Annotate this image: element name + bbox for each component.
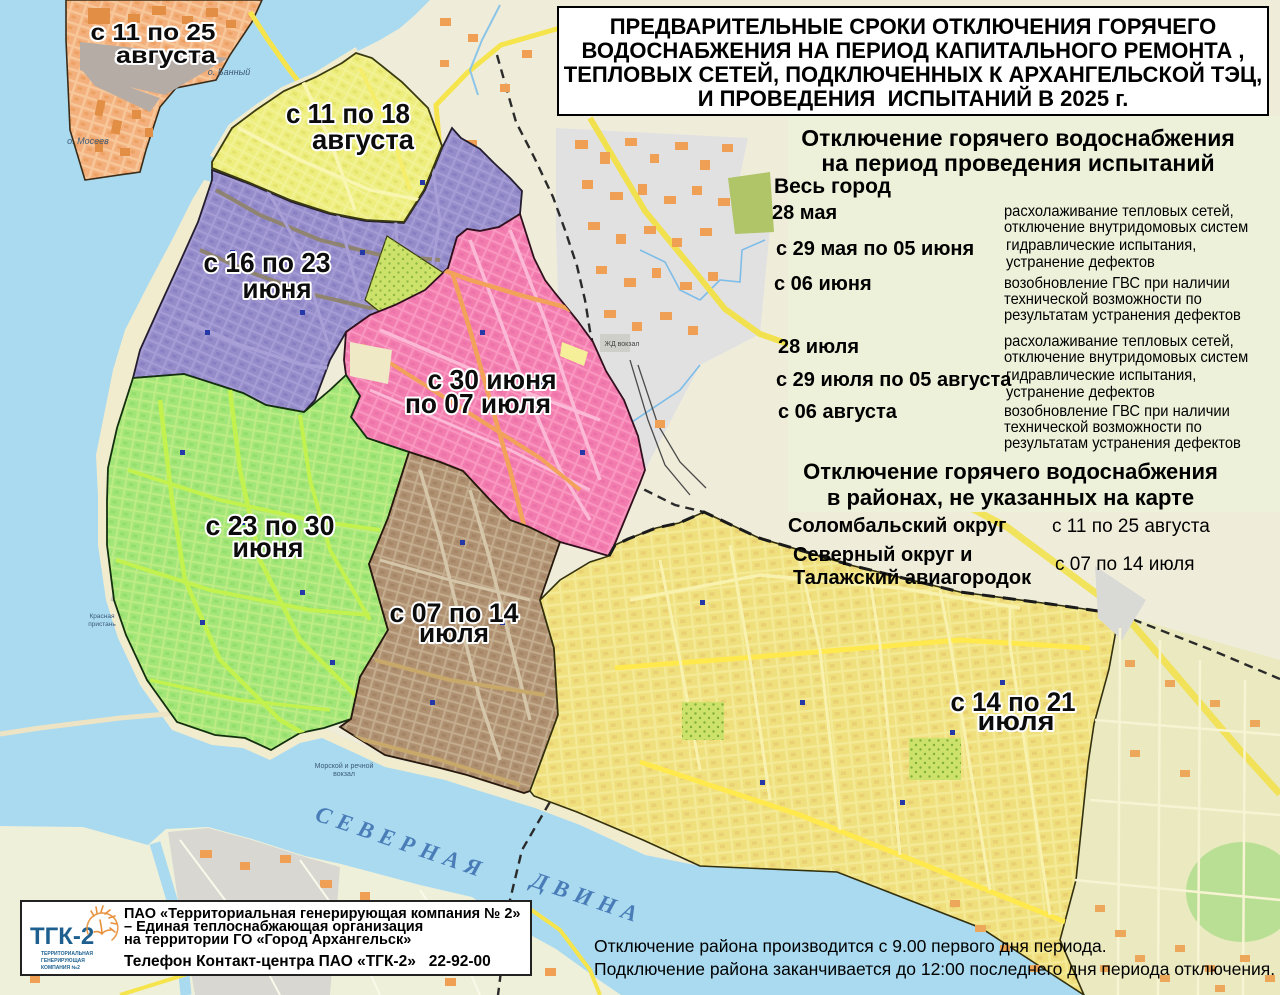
svg-text:ТГК-2: ТГК-2 <box>30 923 94 950</box>
svg-text:ЖД вокзал: ЖД вокзал <box>604 341 639 348</box>
svg-text:Красная: Красная <box>90 613 115 620</box>
svg-text:по 07 июля: по 07 июля <box>405 388 551 419</box>
svg-text:июня: июня <box>233 532 304 563</box>
svg-text:о. Банный: о. Банный <box>208 67 250 77</box>
svg-text:о. Мосеев: о. Мосеев <box>67 136 109 146</box>
svg-text:августа: августа <box>116 42 216 68</box>
svg-text:пристань: пристань <box>88 621 116 628</box>
svg-text:августа: августа <box>312 124 414 155</box>
svg-text:июля: июля <box>978 706 1055 736</box>
svg-text:КОМПАНИЯ №2: КОМПАНИЯ №2 <box>41 965 80 971</box>
svg-text:июня: июня <box>243 273 312 304</box>
svg-text:вокзал: вокзал <box>333 771 355 778</box>
svg-text:ТЕРРИТОРИАЛЬНАЯ: ТЕРРИТОРИАЛЬНАЯ <box>41 951 93 957</box>
svg-text:июля: июля <box>419 618 489 648</box>
svg-text:Морской и речной: Морской и речной <box>315 762 374 770</box>
svg-text:ГЕНЕРИРУЮЩАЯ: ГЕНЕРИРУЮЩАЯ <box>41 958 85 964</box>
